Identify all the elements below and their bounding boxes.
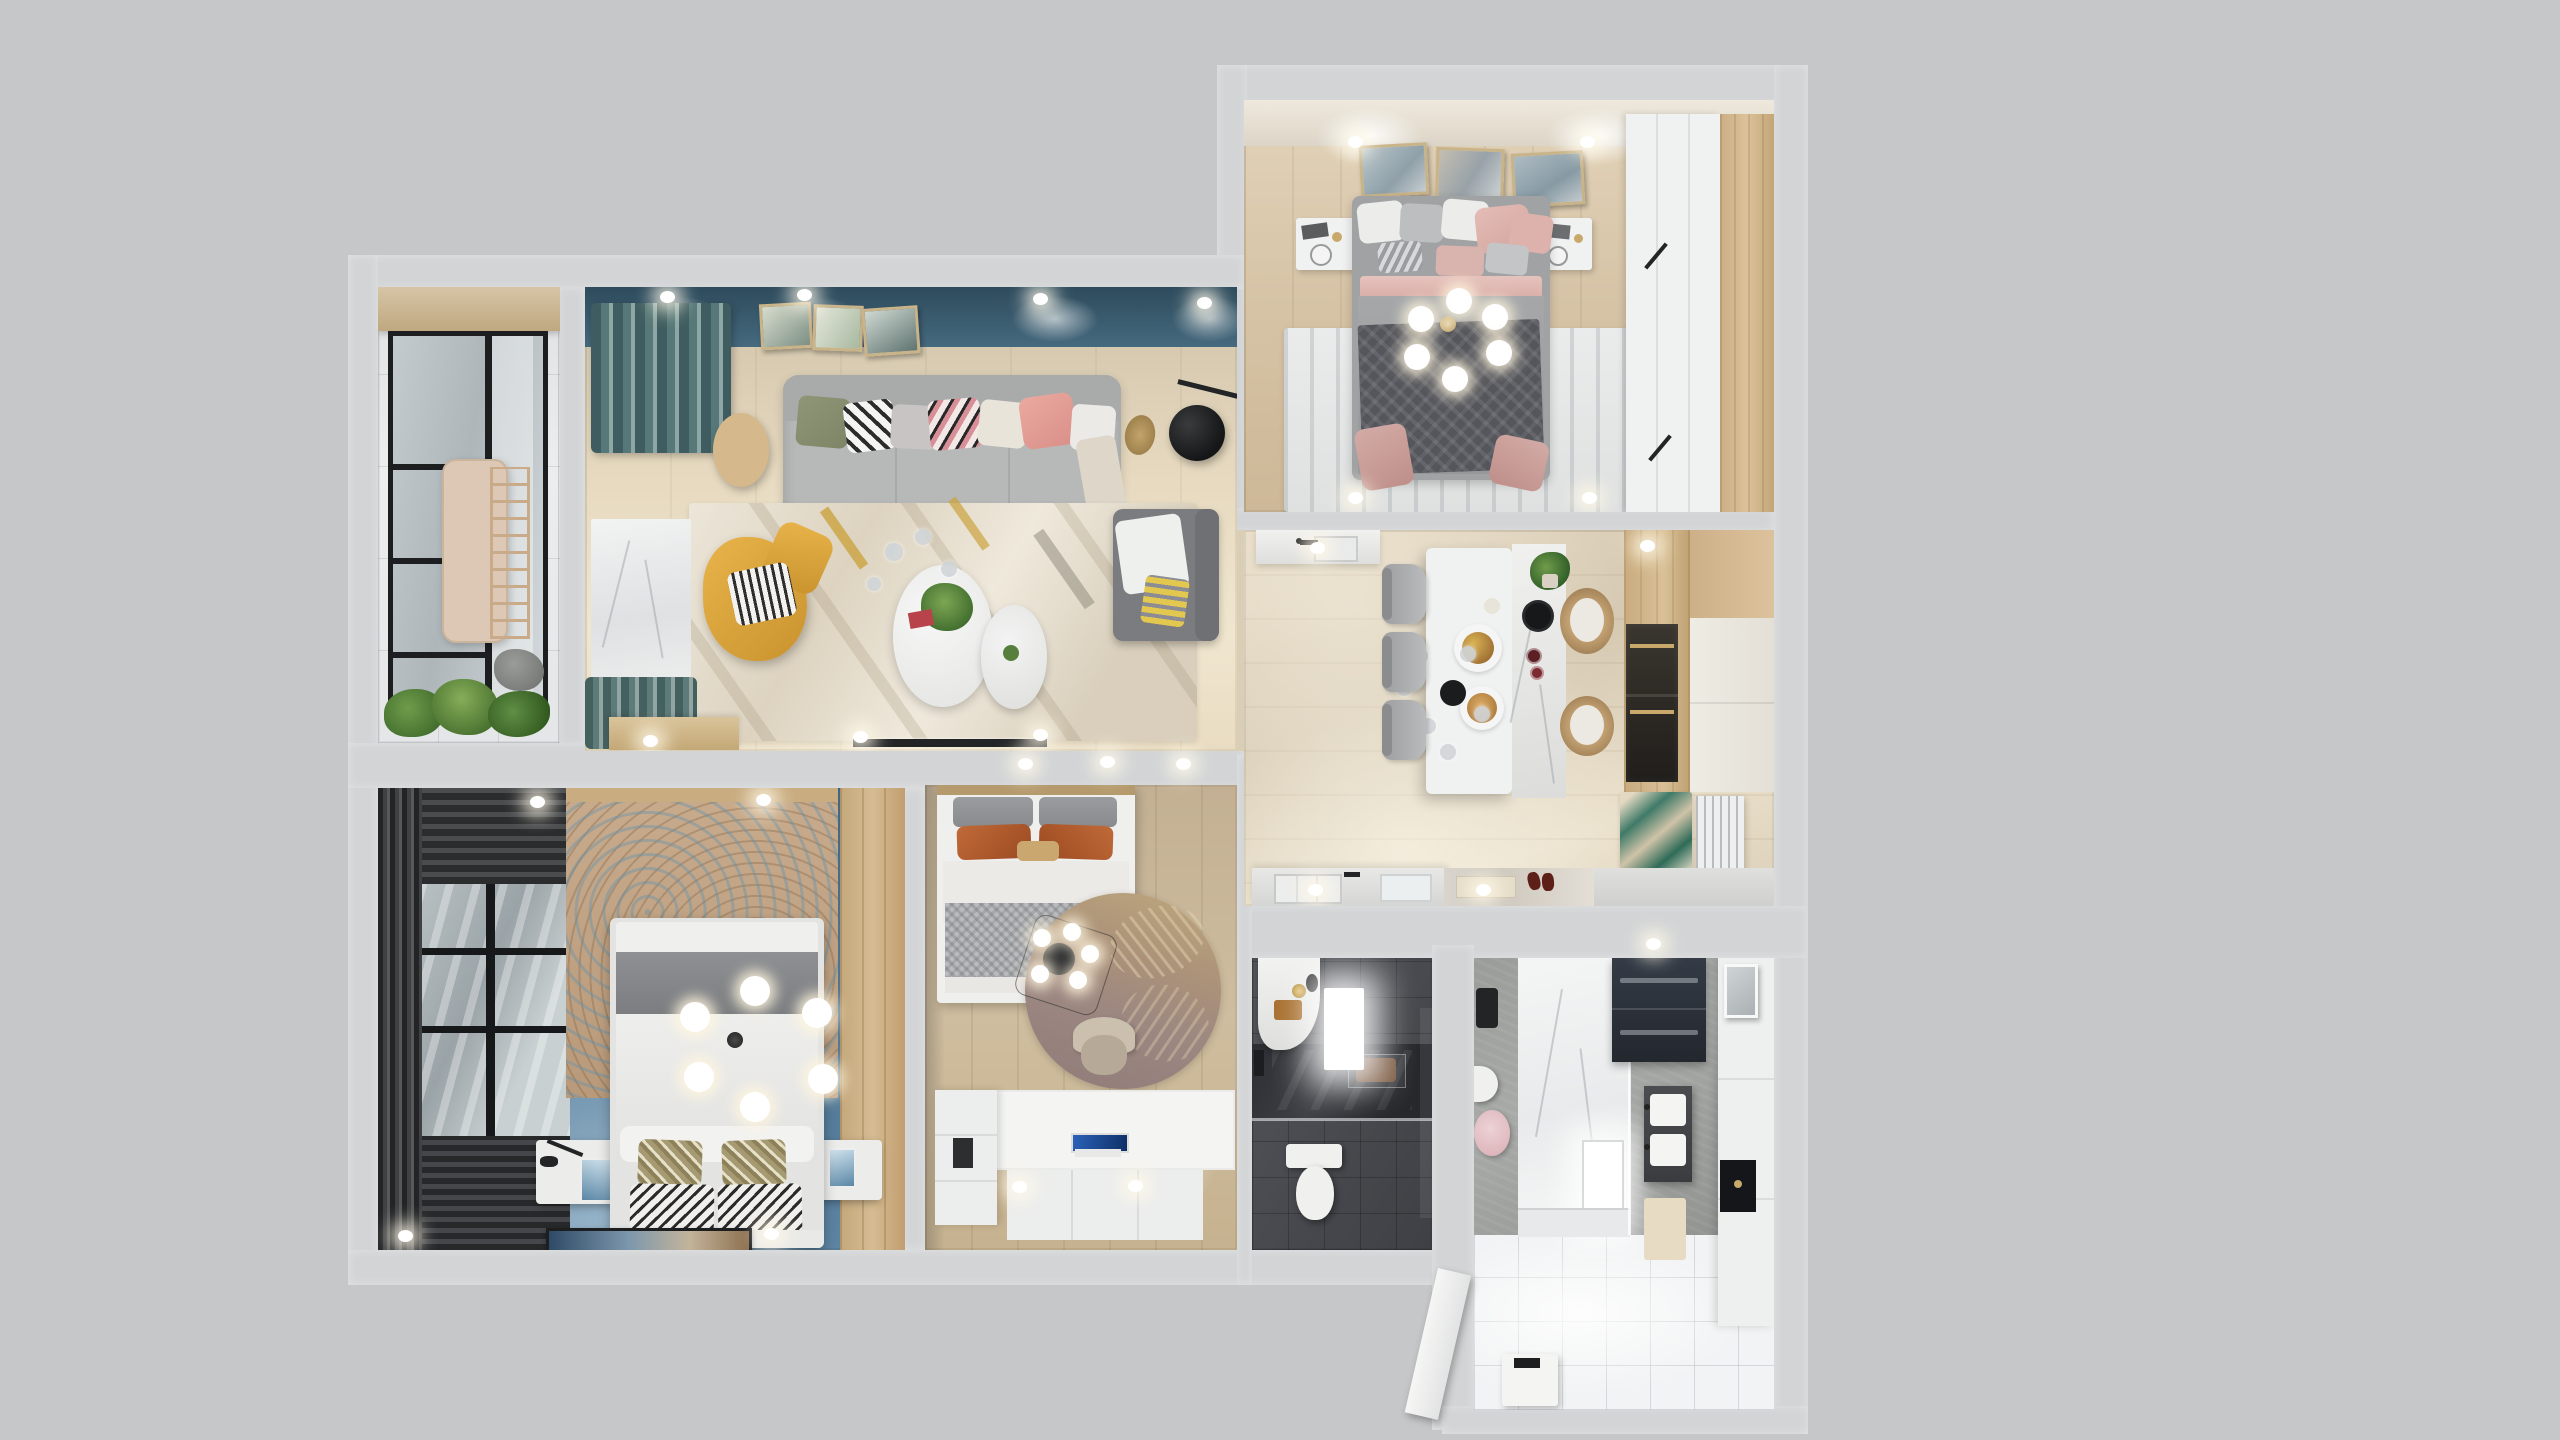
double-bed — [1352, 196, 1550, 480]
chair-back — [1382, 704, 1392, 756]
ceiling-spotlight — [1012, 1181, 1027, 1193]
ceiling-spotlight — [1033, 293, 1048, 305]
pendant-globe — [1081, 945, 1099, 963]
desk-chair — [1073, 1017, 1135, 1077]
chair-seat — [1081, 1035, 1127, 1075]
entry-bench-right — [1594, 868, 1774, 906]
wardrobe-seam — [935, 1134, 997, 1136]
desk-lamp-head — [540, 1156, 558, 1167]
marble-vein — [1539, 684, 1555, 783]
dining-chair — [1382, 632, 1426, 692]
curtains-top-left — [591, 303, 731, 453]
marble-vein — [644, 560, 663, 659]
entry-bench — [1252, 868, 1448, 906]
shower-fixture — [1254, 1050, 1264, 1076]
arc-lamp-shade — [1169, 405, 1225, 461]
ceiling-spotlight — [1310, 542, 1325, 554]
island-table-white — [1426, 548, 1512, 794]
dining-chair — [1382, 564, 1426, 624]
wall-art-frame — [1435, 147, 1505, 201]
alarm-clock — [1548, 246, 1568, 266]
room-kids-bedroom — [925, 785, 1237, 1250]
ceiling-spotlight — [1100, 756, 1115, 768]
chandelier-hub — [1440, 316, 1456, 332]
pendant-glass-globe — [1460, 646, 1476, 662]
toilet-tank — [1286, 1144, 1342, 1168]
chair-back — [1382, 636, 1392, 688]
small-bowl — [1484, 598, 1500, 614]
chandelier-globe — [1446, 288, 1472, 314]
pillow-zigzag — [630, 1183, 715, 1234]
hob-circle — [1522, 600, 1554, 632]
rug-yellow-streak — [948, 496, 990, 550]
sink-vanity-dark — [1644, 1086, 1692, 1182]
pillow-olive — [795, 395, 851, 449]
chair-back — [1382, 568, 1392, 620]
blue-art-card — [580, 1158, 612, 1202]
gold-accent — [1574, 234, 1583, 243]
headboard-wood-strip — [566, 788, 838, 802]
pillow-olive-pattern — [721, 1139, 787, 1187]
washer-dryer-stack — [1612, 958, 1706, 1062]
wardrobe-seam — [1688, 114, 1690, 512]
chandelier-globe — [684, 1062, 714, 1092]
wall-art-frame — [1359, 142, 1430, 197]
desk-lamp-arm — [547, 1139, 584, 1157]
pillow-olive-pattern — [637, 1139, 703, 1187]
pendant-globe — [1031, 965, 1049, 983]
room-kitchen-dining — [1244, 530, 1774, 906]
cabinet-seam — [1690, 702, 1774, 704]
gold-accent — [1332, 232, 1342, 242]
chandelier-globe — [1482, 304, 1508, 330]
pendant-glass-globe — [941, 561, 957, 577]
room-master-bedroom — [378, 788, 905, 1250]
chandelier-globe — [802, 998, 832, 1028]
wall-art-frame — [812, 304, 864, 352]
wardrobe-seam — [935, 1180, 997, 1182]
small-table-plant — [1003, 645, 1019, 661]
nightstand — [820, 1140, 882, 1200]
plant-pot — [1542, 574, 1558, 588]
chandelier-globe — [740, 976, 770, 1006]
ceiling-spotlight — [1476, 884, 1491, 896]
nightstand — [1296, 218, 1356, 270]
wall-top-right-block — [1217, 65, 1807, 105]
pillow-chevron-pink — [927, 397, 983, 451]
rug-gray-streak — [1033, 529, 1094, 610]
marble-accent-strip — [591, 519, 691, 681]
room-bedroom-top-right — [1244, 100, 1774, 512]
room-bathroom-laundry — [1474, 958, 1774, 1410]
faucet-dot — [1644, 1144, 1650, 1150]
shower-tray — [1518, 1208, 1630, 1237]
headboard — [937, 785, 1135, 795]
wine-glass — [1526, 648, 1542, 664]
appliance-seam — [1612, 1008, 1706, 1010]
arc-lamp-arm — [1177, 379, 1237, 400]
ceiling-spotlight — [1197, 297, 1212, 309]
rattan-stool — [1560, 696, 1614, 756]
wall-ovens — [1626, 624, 1678, 782]
ceiling-spotlight — [1348, 492, 1363, 504]
nightstand-decor — [1301, 222, 1329, 239]
ceiling-spotlight — [660, 291, 675, 303]
ceiling-spotlight — [398, 1230, 413, 1242]
mirror-light — [1324, 988, 1364, 1070]
wall-art-frame — [861, 305, 920, 357]
floorplan-canvas — [0, 0, 2560, 1440]
divider — [1296, 876, 1298, 902]
window-glass — [420, 880, 570, 1148]
pillow-zigzag — [842, 398, 898, 454]
pendant-hub — [1440, 680, 1466, 706]
ceiling-spotlight — [1582, 492, 1597, 504]
sink-basin — [1650, 1134, 1686, 1166]
wall-kitchen-bottom — [1217, 906, 1807, 958]
alarm-clock — [1310, 244, 1332, 266]
wine-glass — [1530, 666, 1544, 680]
leaning-art-frame — [1724, 964, 1758, 1018]
curtain-stack-left — [378, 788, 422, 1250]
storage-column — [1718, 958, 1774, 1326]
pendant-glass-globe — [1474, 706, 1490, 722]
chaise-lounge — [1113, 509, 1219, 641]
shower-glass-line — [1252, 1118, 1432, 1121]
wall-light-glow — [1010, 295, 1100, 343]
yellow-gray-pillow — [1140, 574, 1190, 628]
wall-art-frame — [759, 302, 813, 351]
room-bathroom-dark — [1252, 958, 1432, 1250]
desk-drawers — [1007, 1170, 1203, 1240]
ceiling-spotlight — [764, 1228, 779, 1240]
toilet-bowl — [1296, 1166, 1334, 1220]
nightstand — [536, 1140, 616, 1204]
chandelier-globe — [1442, 366, 1468, 392]
pink-corner-blanket — [1487, 433, 1550, 493]
window-bar — [420, 1026, 570, 1033]
ceiling-spotlight — [1033, 729, 1048, 741]
stool-cushion — [1570, 705, 1604, 745]
planter-greenery — [384, 679, 554, 737]
oven-handle — [1630, 710, 1674, 714]
marble-vein — [1535, 989, 1563, 1137]
blue-art-card — [828, 1148, 856, 1188]
double-bed — [610, 918, 824, 1248]
black-niche — [1720, 1160, 1756, 1212]
wall-right-outer — [1774, 65, 1808, 1414]
window-bar — [420, 948, 570, 955]
window-bar — [393, 652, 485, 658]
dark-panel — [953, 1138, 973, 1168]
wall-tv — [853, 739, 1047, 747]
wall-master-kids — [903, 788, 925, 1250]
orange-towel — [1274, 1000, 1302, 1020]
plant-clump — [488, 691, 550, 737]
dark-vase — [1306, 974, 1318, 992]
pillow-chevron — [1377, 241, 1423, 274]
ceiling-spotlight — [643, 735, 658, 747]
pillow-blush-small — [1435, 245, 1484, 277]
round-side-table — [713, 413, 769, 487]
ceiling-spotlight — [1646, 938, 1661, 950]
pillow-gray — [1399, 203, 1445, 243]
pendant-globe — [1033, 929, 1051, 947]
oven-seam — [1626, 694, 1678, 697]
rattan-stool — [1560, 588, 1614, 654]
wall-sheen — [1420, 1008, 1432, 1218]
pink-corner-blanket — [1353, 422, 1415, 492]
chandelier-globe — [1404, 344, 1430, 370]
gold-bowl — [1292, 984, 1306, 998]
feather-stroke — [1101, 894, 1214, 990]
window-mullion — [486, 880, 495, 1148]
wardrobe-white — [1626, 114, 1720, 512]
pendant-glass-globe — [867, 577, 881, 591]
ceiling-spotlight — [853, 731, 868, 743]
chandelier-globe — [740, 1092, 770, 1122]
upper-cabinet-wood — [1690, 530, 1774, 618]
yellow-armchair — [703, 527, 831, 667]
ceiling-spotlight — [756, 794, 771, 806]
tv-console — [609, 717, 739, 750]
shoe — [1526, 871, 1542, 891]
chandelier-hub — [727, 1032, 743, 1048]
faucet-knob — [1296, 538, 1302, 544]
laptop — [1071, 1133, 1125, 1159]
faucet-dot — [1644, 1104, 1650, 1110]
room-balcony — [378, 287, 560, 743]
pillow-gray — [1039, 797, 1117, 827]
pink-basin — [1474, 1110, 1510, 1156]
ceiling-spotlight — [1640, 540, 1655, 552]
chandelier-globe — [808, 1064, 838, 1094]
pillow-white — [1356, 200, 1406, 245]
wardrobe-wood-panel — [1720, 114, 1774, 512]
pendant-glass-globe — [915, 529, 931, 545]
shoe — [1541, 873, 1554, 892]
pendant-glass-globe — [885, 543, 903, 561]
gold-accent — [1734, 1180, 1742, 1188]
appliance-handle — [1620, 978, 1698, 983]
wardrobe-white — [935, 1090, 997, 1225]
throw-on-arm — [1075, 434, 1127, 514]
shower-set-black — [1476, 988, 1498, 1028]
ceiling-spotlight — [1348, 136, 1363, 148]
appliance-handle — [1620, 1030, 1698, 1035]
bench-sink — [1380, 874, 1432, 902]
ceiling-spotlight — [1018, 758, 1033, 770]
pendant-globe — [1063, 923, 1081, 941]
bolster-strap — [1017, 841, 1059, 861]
chaise-arm — [1195, 509, 1219, 641]
oven-handle — [1630, 644, 1674, 648]
dining-chair — [1382, 700, 1426, 760]
pillow-zigzag — [718, 1183, 803, 1234]
pillow-gray — [953, 797, 1033, 827]
sink-basin — [1650, 1094, 1686, 1126]
pendant-globe — [1069, 971, 1087, 989]
marble-vein — [602, 540, 631, 647]
rattan-wall-disc — [1122, 413, 1158, 458]
stool-cushion — [1570, 598, 1604, 642]
storage-bench — [1502, 1354, 1558, 1406]
pendant-glass-globe — [1440, 744, 1456, 760]
cream-mat — [1644, 1198, 1686, 1260]
drying-rack-ladder — [490, 467, 530, 639]
gray-blanket-band — [616, 952, 818, 1014]
wood-beam — [378, 287, 560, 331]
chandelier-globe — [1408, 306, 1434, 332]
faucet — [1344, 872, 1360, 877]
ceiling-spotlight — [1308, 884, 1323, 896]
ceiling-spotlight — [1176, 758, 1191, 770]
runner-art — [546, 1228, 752, 1250]
ceiling-spotlight — [530, 796, 545, 808]
wall-bath-bottom — [1442, 1406, 1808, 1434]
wall-top-left-block — [348, 255, 1244, 289]
chandelier-globe — [1486, 340, 1512, 366]
cabinet-seam — [1718, 1078, 1774, 1080]
vanity — [1258, 958, 1320, 1050]
room-living — [585, 287, 1237, 751]
drawer-seam — [1071, 1170, 1073, 1240]
wall-balcony-living — [558, 287, 585, 747]
pillow-gray-small — [1485, 242, 1530, 276]
wardrobe-handle — [1648, 434, 1672, 461]
entry-marble-strip — [1444, 868, 1594, 906]
chandelier-globe — [680, 1002, 710, 1032]
laptop-base — [1075, 1149, 1121, 1157]
ceiling-spotlight — [1128, 1180, 1143, 1192]
ceiling-spotlight — [1580, 136, 1595, 148]
ceiling-spotlight — [797, 289, 812, 301]
wall-bottom — [348, 1250, 1442, 1285]
bench-slot — [1514, 1358, 1540, 1368]
duvet-top-fold — [616, 922, 818, 956]
